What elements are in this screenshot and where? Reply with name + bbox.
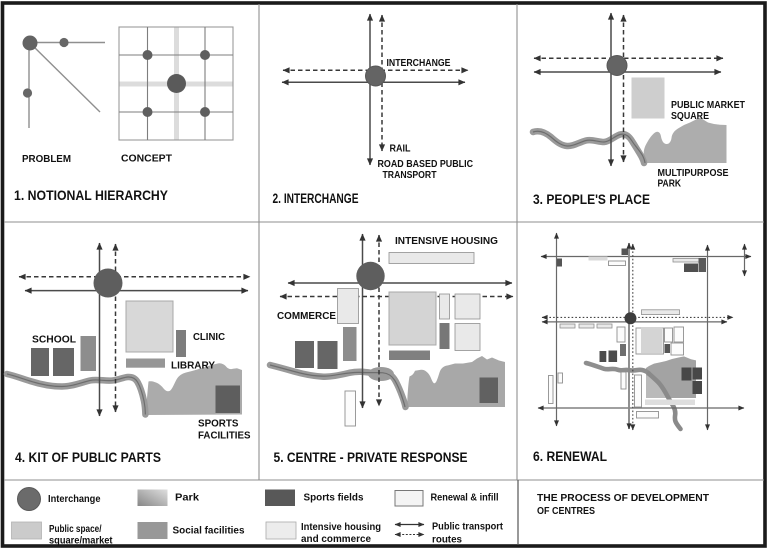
svg-text:SQUARE: SQUARE xyxy=(671,110,709,122)
svg-text:INTERCHANGE: INTERCHANGE xyxy=(387,57,451,69)
svg-text:Intensive housing: Intensive housing xyxy=(301,522,381,533)
svg-text:1. NOTIONAL HIERARCHY: 1. NOTIONAL HIERARCHY xyxy=(14,188,168,203)
svg-text:Interchange: Interchange xyxy=(48,494,101,505)
svg-text:THE PROCESS OF DEVELOPMENT: THE PROCESS OF DEVELOPMENT xyxy=(537,492,710,504)
svg-text:Social facilities: Social facilities xyxy=(173,526,245,537)
svg-text:Public transport: Public transport xyxy=(432,522,504,533)
svg-text:routes: routes xyxy=(432,535,462,546)
svg-text:Park: Park xyxy=(175,493,199,504)
svg-text:TRANSPORT: TRANSPORT xyxy=(383,169,437,181)
svg-text:LIBRARY: LIBRARY xyxy=(171,360,215,372)
svg-text:CONCEPT: CONCEPT xyxy=(121,153,173,165)
svg-text:INTENSIVE HOUSING: INTENSIVE HOUSING xyxy=(395,235,498,247)
svg-text:square/market: square/market xyxy=(49,536,113,547)
svg-text:OF CENTRES: OF CENTRES xyxy=(537,505,595,517)
svg-text:2. INTERCHANGE: 2. INTERCHANGE xyxy=(273,191,359,206)
svg-text:CLINIC: CLINIC xyxy=(193,331,225,343)
svg-text:Sports fields: Sports fields xyxy=(304,493,364,504)
svg-text:6. RENEWAL: 6. RENEWAL xyxy=(533,449,607,464)
svg-text:RAIL: RAIL xyxy=(390,143,411,155)
svg-text:4. KIT OF PUBLIC PARTS: 4. KIT OF PUBLIC PARTS xyxy=(15,450,161,465)
svg-text:Public space/: Public space/ xyxy=(49,524,102,535)
svg-text:Renewal & infill: Renewal & infill xyxy=(431,493,499,504)
svg-text:PROBLEM: PROBLEM xyxy=(22,153,71,165)
svg-text:SPORTS: SPORTS xyxy=(198,418,239,430)
svg-text:PARK: PARK xyxy=(658,178,682,190)
svg-text:FACILITIES: FACILITIES xyxy=(198,430,251,442)
svg-text:SCHOOL: SCHOOL xyxy=(32,334,77,346)
svg-text:COMMERCE: COMMERCE xyxy=(277,310,336,322)
svg-text:and commerce: and commerce xyxy=(301,534,371,545)
svg-text:5. CENTRE - PRIVATE RESPONSE: 5. CENTRE - PRIVATE RESPONSE xyxy=(274,450,468,465)
svg-text:3. PEOPLE'S PLACE: 3. PEOPLE'S PLACE xyxy=(533,192,650,207)
